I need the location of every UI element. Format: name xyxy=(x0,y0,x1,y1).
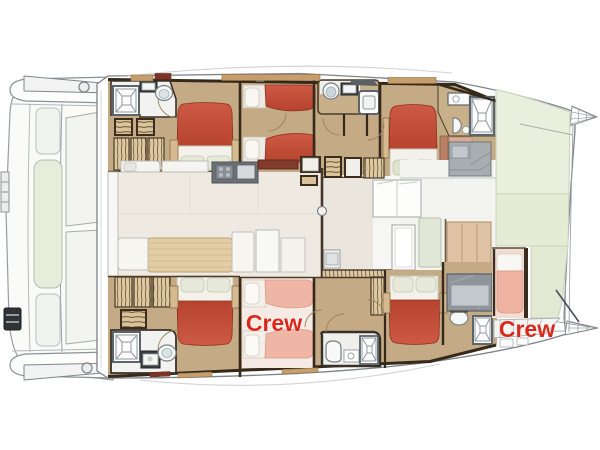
svg-text:Crew: Crew xyxy=(499,316,555,342)
svg-text:Crew: Crew xyxy=(246,310,302,336)
